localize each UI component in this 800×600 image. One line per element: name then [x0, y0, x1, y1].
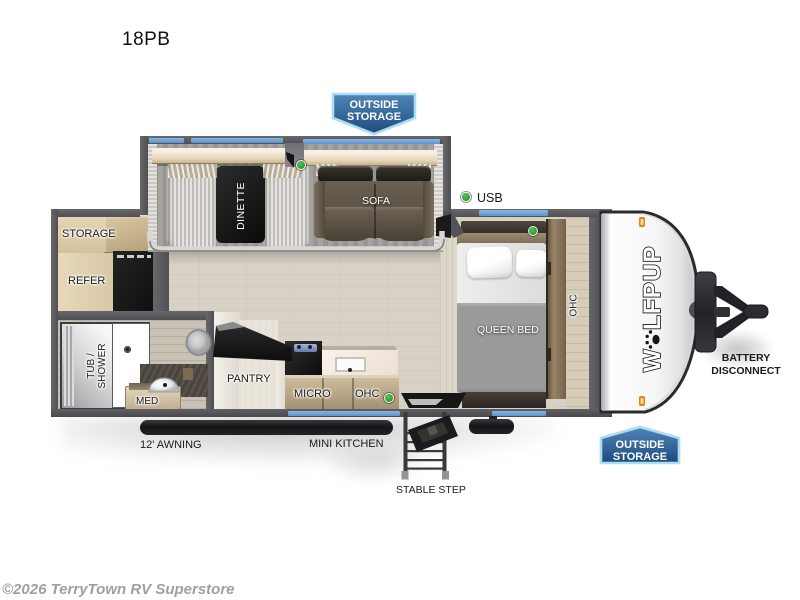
svg-text:LFPUP: LFPUP	[639, 245, 666, 330]
svg-text:OUTSIDE: OUTSIDE	[616, 439, 665, 451]
svg-text:STORAGE: STORAGE	[347, 111, 401, 123]
svg-text:W: W	[639, 348, 666, 372]
svg-text:STORAGE: STORAGE	[613, 451, 667, 463]
svg-text:OUTSIDE: OUTSIDE	[350, 99, 399, 111]
